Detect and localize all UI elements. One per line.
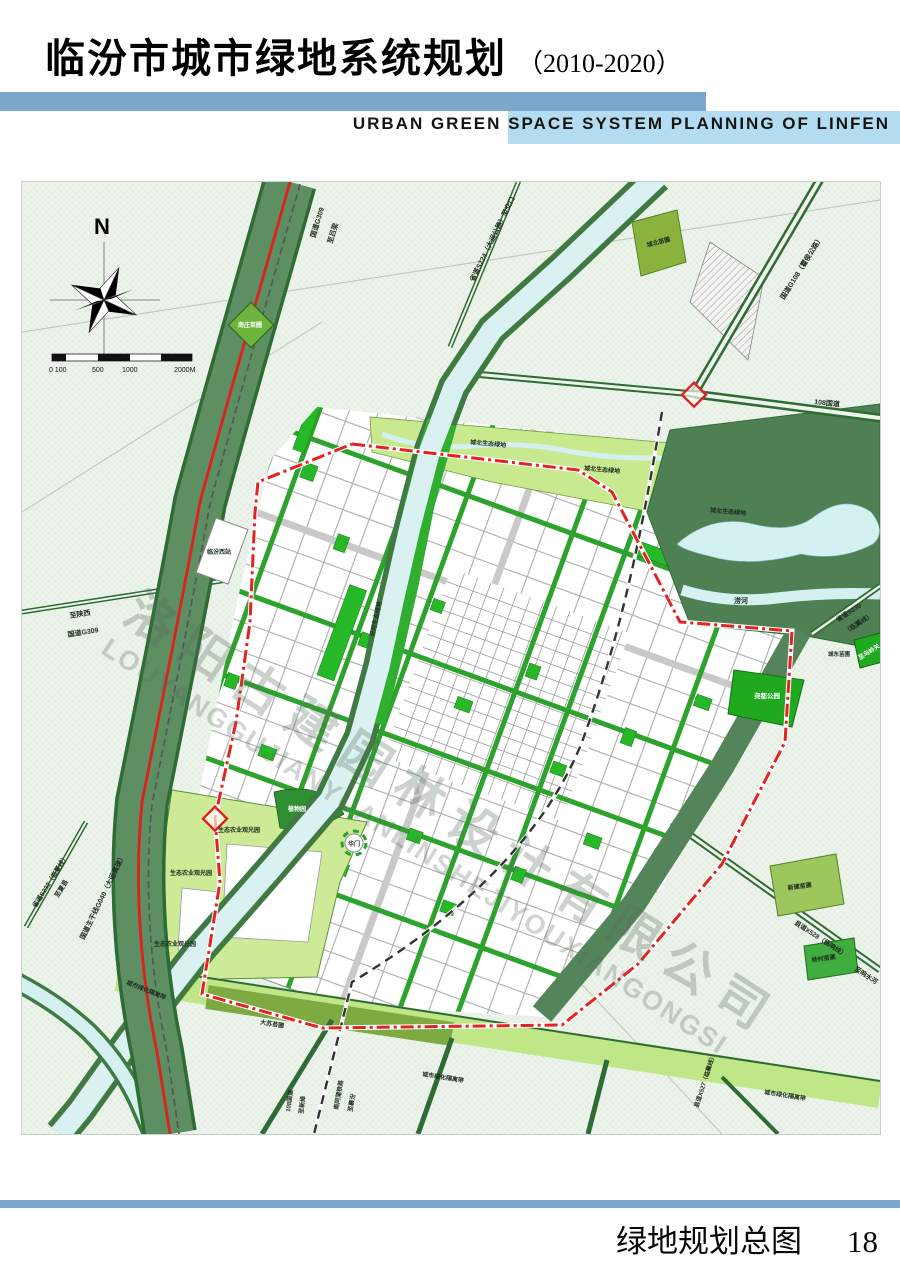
- map-label: 临汾西站: [207, 548, 231, 556]
- map-label: 尧都公园: [754, 691, 781, 700]
- map-label: 南庄苗圃: [238, 321, 262, 329]
- map-label: 涝河: [734, 596, 748, 605]
- scale-label-0: 0 100: [49, 367, 67, 374]
- scale-label-1000: 1000: [122, 367, 138, 374]
- page-title: 临汾市城市绿地系统规划（2010-2020）: [45, 26, 682, 84]
- footer-title: 绿地规划总图18: [616, 1216, 878, 1261]
- title-zh: 临汾市城市绿地系统规划: [45, 36, 507, 81]
- map-label: 生态农业观光园: [218, 826, 260, 834]
- planning-map: N 0 100 500 1000 2000M 国道G309至吕梁省道S224（大…: [21, 181, 881, 1135]
- map-label: 城东苗圃: [828, 650, 851, 658]
- page-number: 18: [847, 1224, 878, 1259]
- map-label: 生态农业观光园: [170, 869, 212, 877]
- map-canvas: N 0 100 500 1000 2000M 国道G309至吕梁省道S224（大…: [22, 182, 880, 1134]
- scale-label-500: 500: [92, 367, 104, 374]
- compass-n-label: N: [94, 214, 110, 239]
- header-accent-bar: [0, 92, 706, 111]
- map-label: 植物园: [287, 805, 306, 813]
- subtitle-en: URBAN GREEN SPACE SYSTEM PLANNING OF LIN…: [353, 114, 890, 134]
- title-period: （2010-2020）: [517, 49, 682, 78]
- map-label: 生态农业观光园: [154, 940, 196, 948]
- scale-label-2000: 2000M: [174, 367, 196, 374]
- footer-map-name: 绿地规划总图: [616, 1224, 802, 1259]
- footer-accent-bar: [0, 1200, 900, 1208]
- map-label: 华门: [348, 840, 360, 848]
